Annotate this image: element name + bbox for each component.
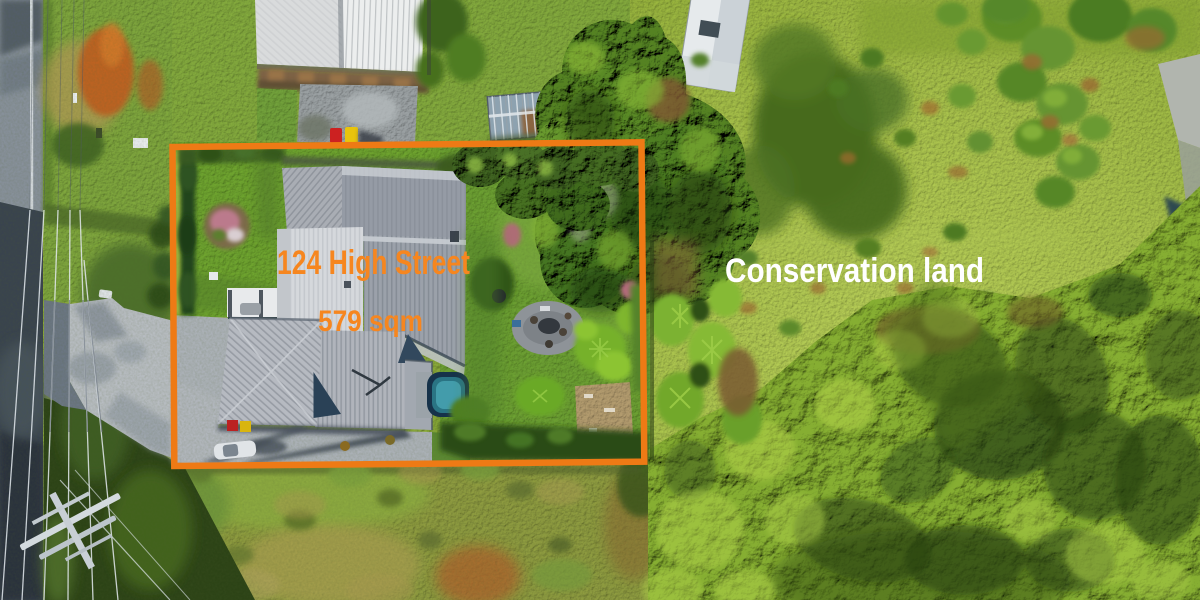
svg-text:579 sqm: 579 sqm [318, 305, 423, 338]
svg-text:124 High Street: 124 High Street [277, 244, 470, 282]
svg-text:Conservation land: Conservation land [725, 252, 984, 290]
